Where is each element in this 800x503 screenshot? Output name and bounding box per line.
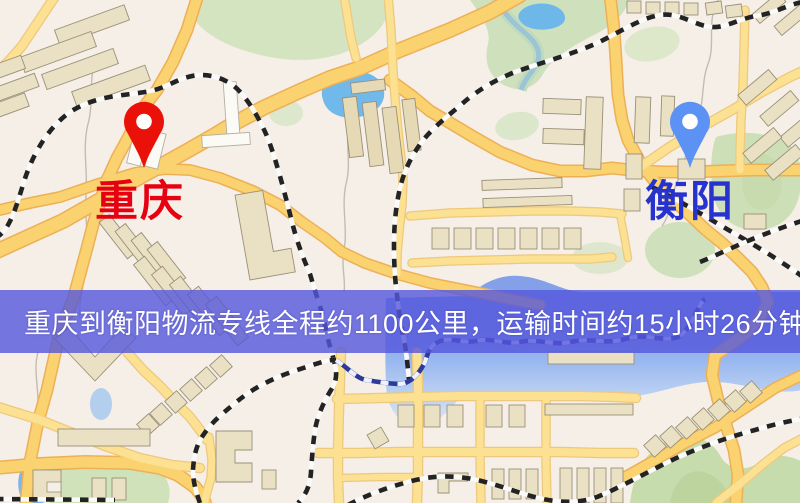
map-screenshot: 重庆到衡阳物流专线全程约1100公里，运输时间约15小时26分钟. 重庆 衡阳 [0,0,800,503]
origin-pin-icon [120,100,168,172]
route-info-text: 重庆到衡阳物流专线全程约1100公里，运输时间约15小时26分钟. [0,302,800,341]
origin-label: 重庆 [80,181,200,224]
destination-pin-icon [666,100,714,172]
map-canvas [0,0,800,503]
destination-label: 衡阳 [630,181,750,224]
route-info-banner: 重庆到衡阳物流专线全程约1100公里，运输时间约15小时26分钟. [0,290,800,353]
